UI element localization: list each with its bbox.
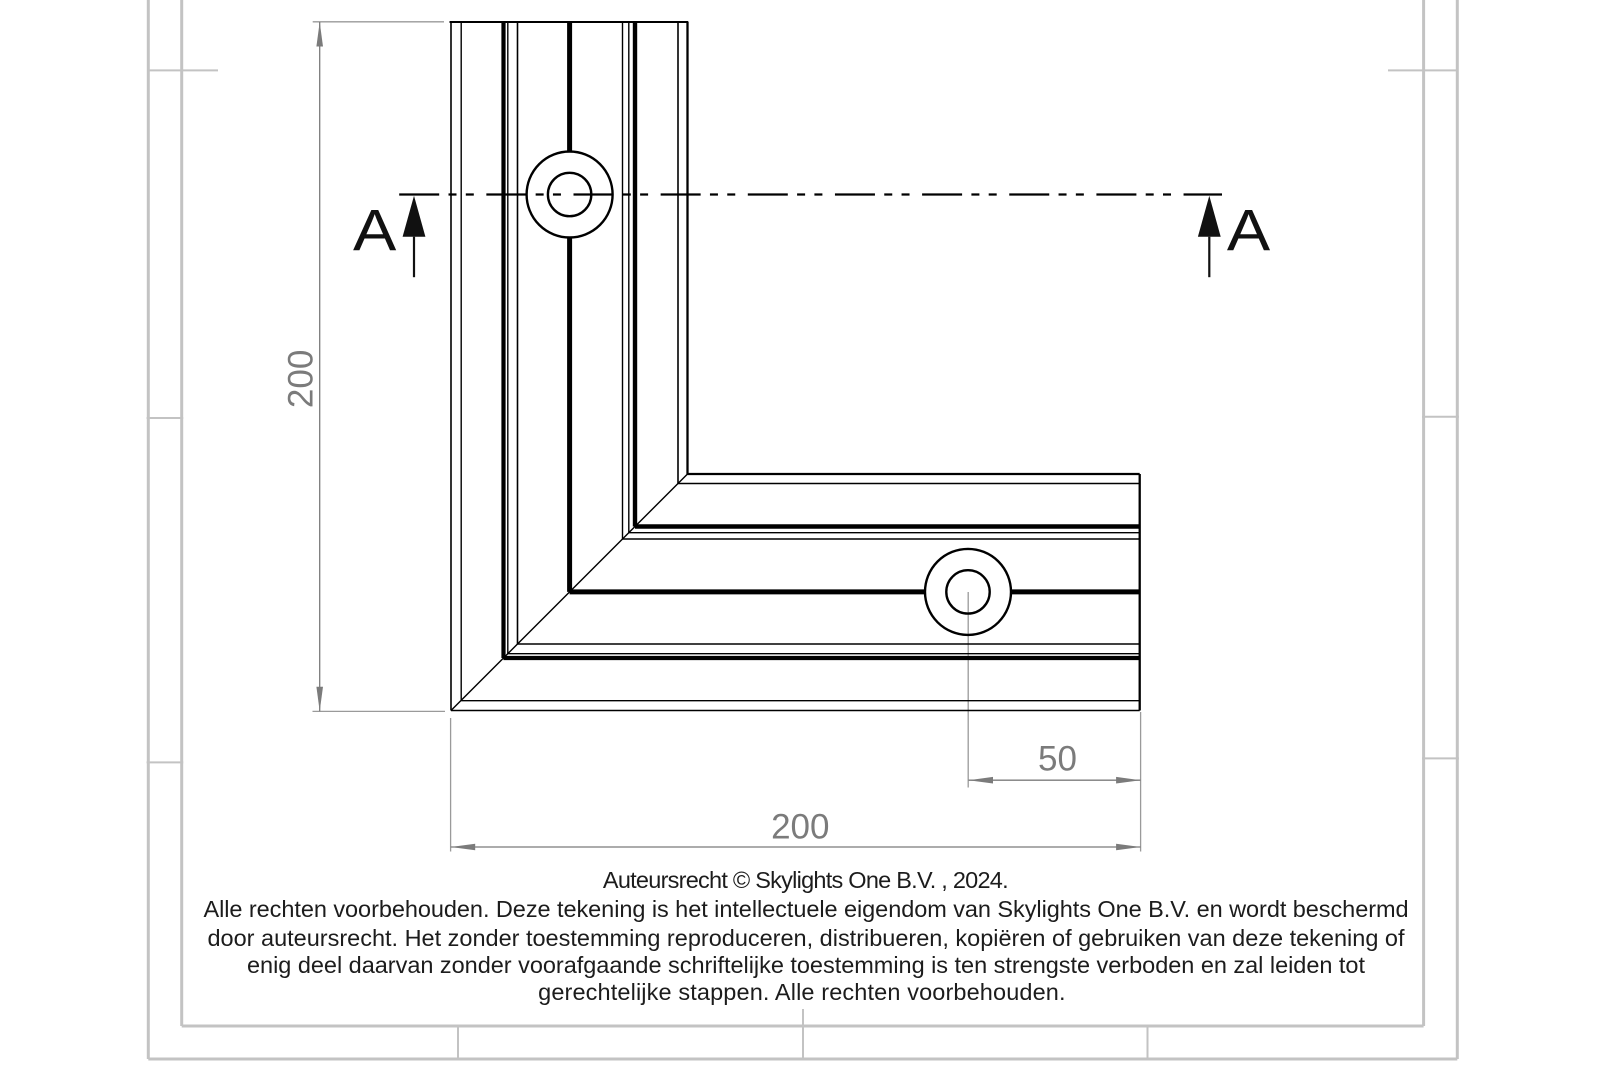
svg-text:gerechtelijke stappen. Alle re: gerechtelijke stappen. Alle rechten voor… [538,979,1066,1005]
svg-text:Auteursrecht © Skylights One B: Auteursrecht © Skylights One B.V. , 2024… [603,867,1008,893]
svg-text:enig deel daarvan zonder voora: enig deel daarvan zonder voorafgaande sc… [247,952,1365,978]
svg-text:Alle rechten voorbehouden. Dez: Alle rechten voorbehouden. Deze tekening… [203,896,1408,922]
svg-text:A: A [353,199,396,264]
svg-text:200: 200 [771,808,829,847]
svg-text:50: 50 [1038,739,1077,778]
svg-text:door auteursrecht. Het zonder: door auteursrecht. Het zonder toestemmin… [207,925,1404,951]
svg-text:A: A [1227,199,1270,264]
svg-text:200: 200 [282,350,321,408]
